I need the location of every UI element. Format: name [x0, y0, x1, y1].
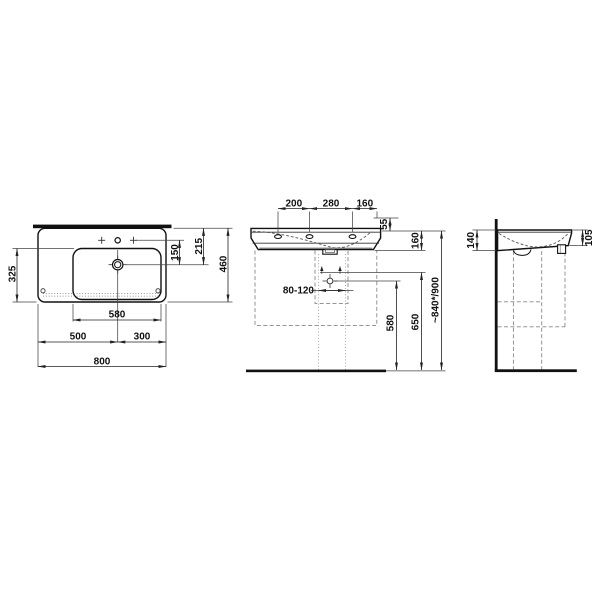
- dim-tap-to-drain: 150: [170, 244, 181, 261]
- technical-drawing: 325 460 215 150 580 500 300 800: [0, 0, 600, 600]
- dim-drain-range: 80-120: [283, 286, 315, 297]
- dim-height-rear: 140: [466, 232, 477, 249]
- trap-cover-outline: [315, 251, 348, 304]
- floor-line: [495, 369, 577, 372]
- tap-hole-3: [349, 235, 356, 239]
- plan-view: 325 460 215 150 580 500 300 800: [8, 225, 233, 368]
- tap-hole-2: [306, 235, 313, 239]
- dim-body-height: 160: [411, 232, 422, 249]
- dim-width-left: 500: [70, 332, 87, 343]
- dim-rear-to-drain: 215: [194, 238, 205, 255]
- dim-width-right: 300: [134, 332, 151, 343]
- dim-floor-to-trap: 580: [386, 314, 397, 331]
- overflow-fitting: [558, 245, 566, 254]
- dim-width: 800: [94, 356, 111, 367]
- dim-hole-pitch-right: 160: [356, 198, 373, 209]
- dim-floor-to-fixings: 650: [411, 313, 422, 330]
- drain-boss: [514, 249, 532, 255]
- dim-depth: 460: [219, 255, 230, 272]
- dim-hole-pitch-left: 200: [285, 198, 302, 209]
- dim-bowl-width: 580: [109, 310, 126, 321]
- furniture-outline: [255, 251, 377, 326]
- drawing-canvas: 325 460 215 150 580 500 300 800: [0, 0, 600, 600]
- dim-hole-pitch-mid: 280: [323, 198, 340, 209]
- front-dimensions: 200 280 160 55 160 80-120 580 650 ~840*/…: [278, 198, 442, 370]
- dim-bowl-depth: 325: [8, 265, 19, 282]
- front-view: 200 280 160 55 160 80-120 580 650 ~840*/…: [246, 198, 446, 372]
- dim-height-front: 105: [584, 229, 595, 246]
- floor-line: [246, 370, 386, 373]
- dim-install-height: ~840*/900: [431, 277, 442, 323]
- dim-deck-to-rim: 55: [379, 218, 390, 230]
- drain-fitting: [323, 250, 337, 255]
- tap-hole-1: [275, 235, 282, 239]
- side-view: 140 105: [466, 219, 595, 372]
